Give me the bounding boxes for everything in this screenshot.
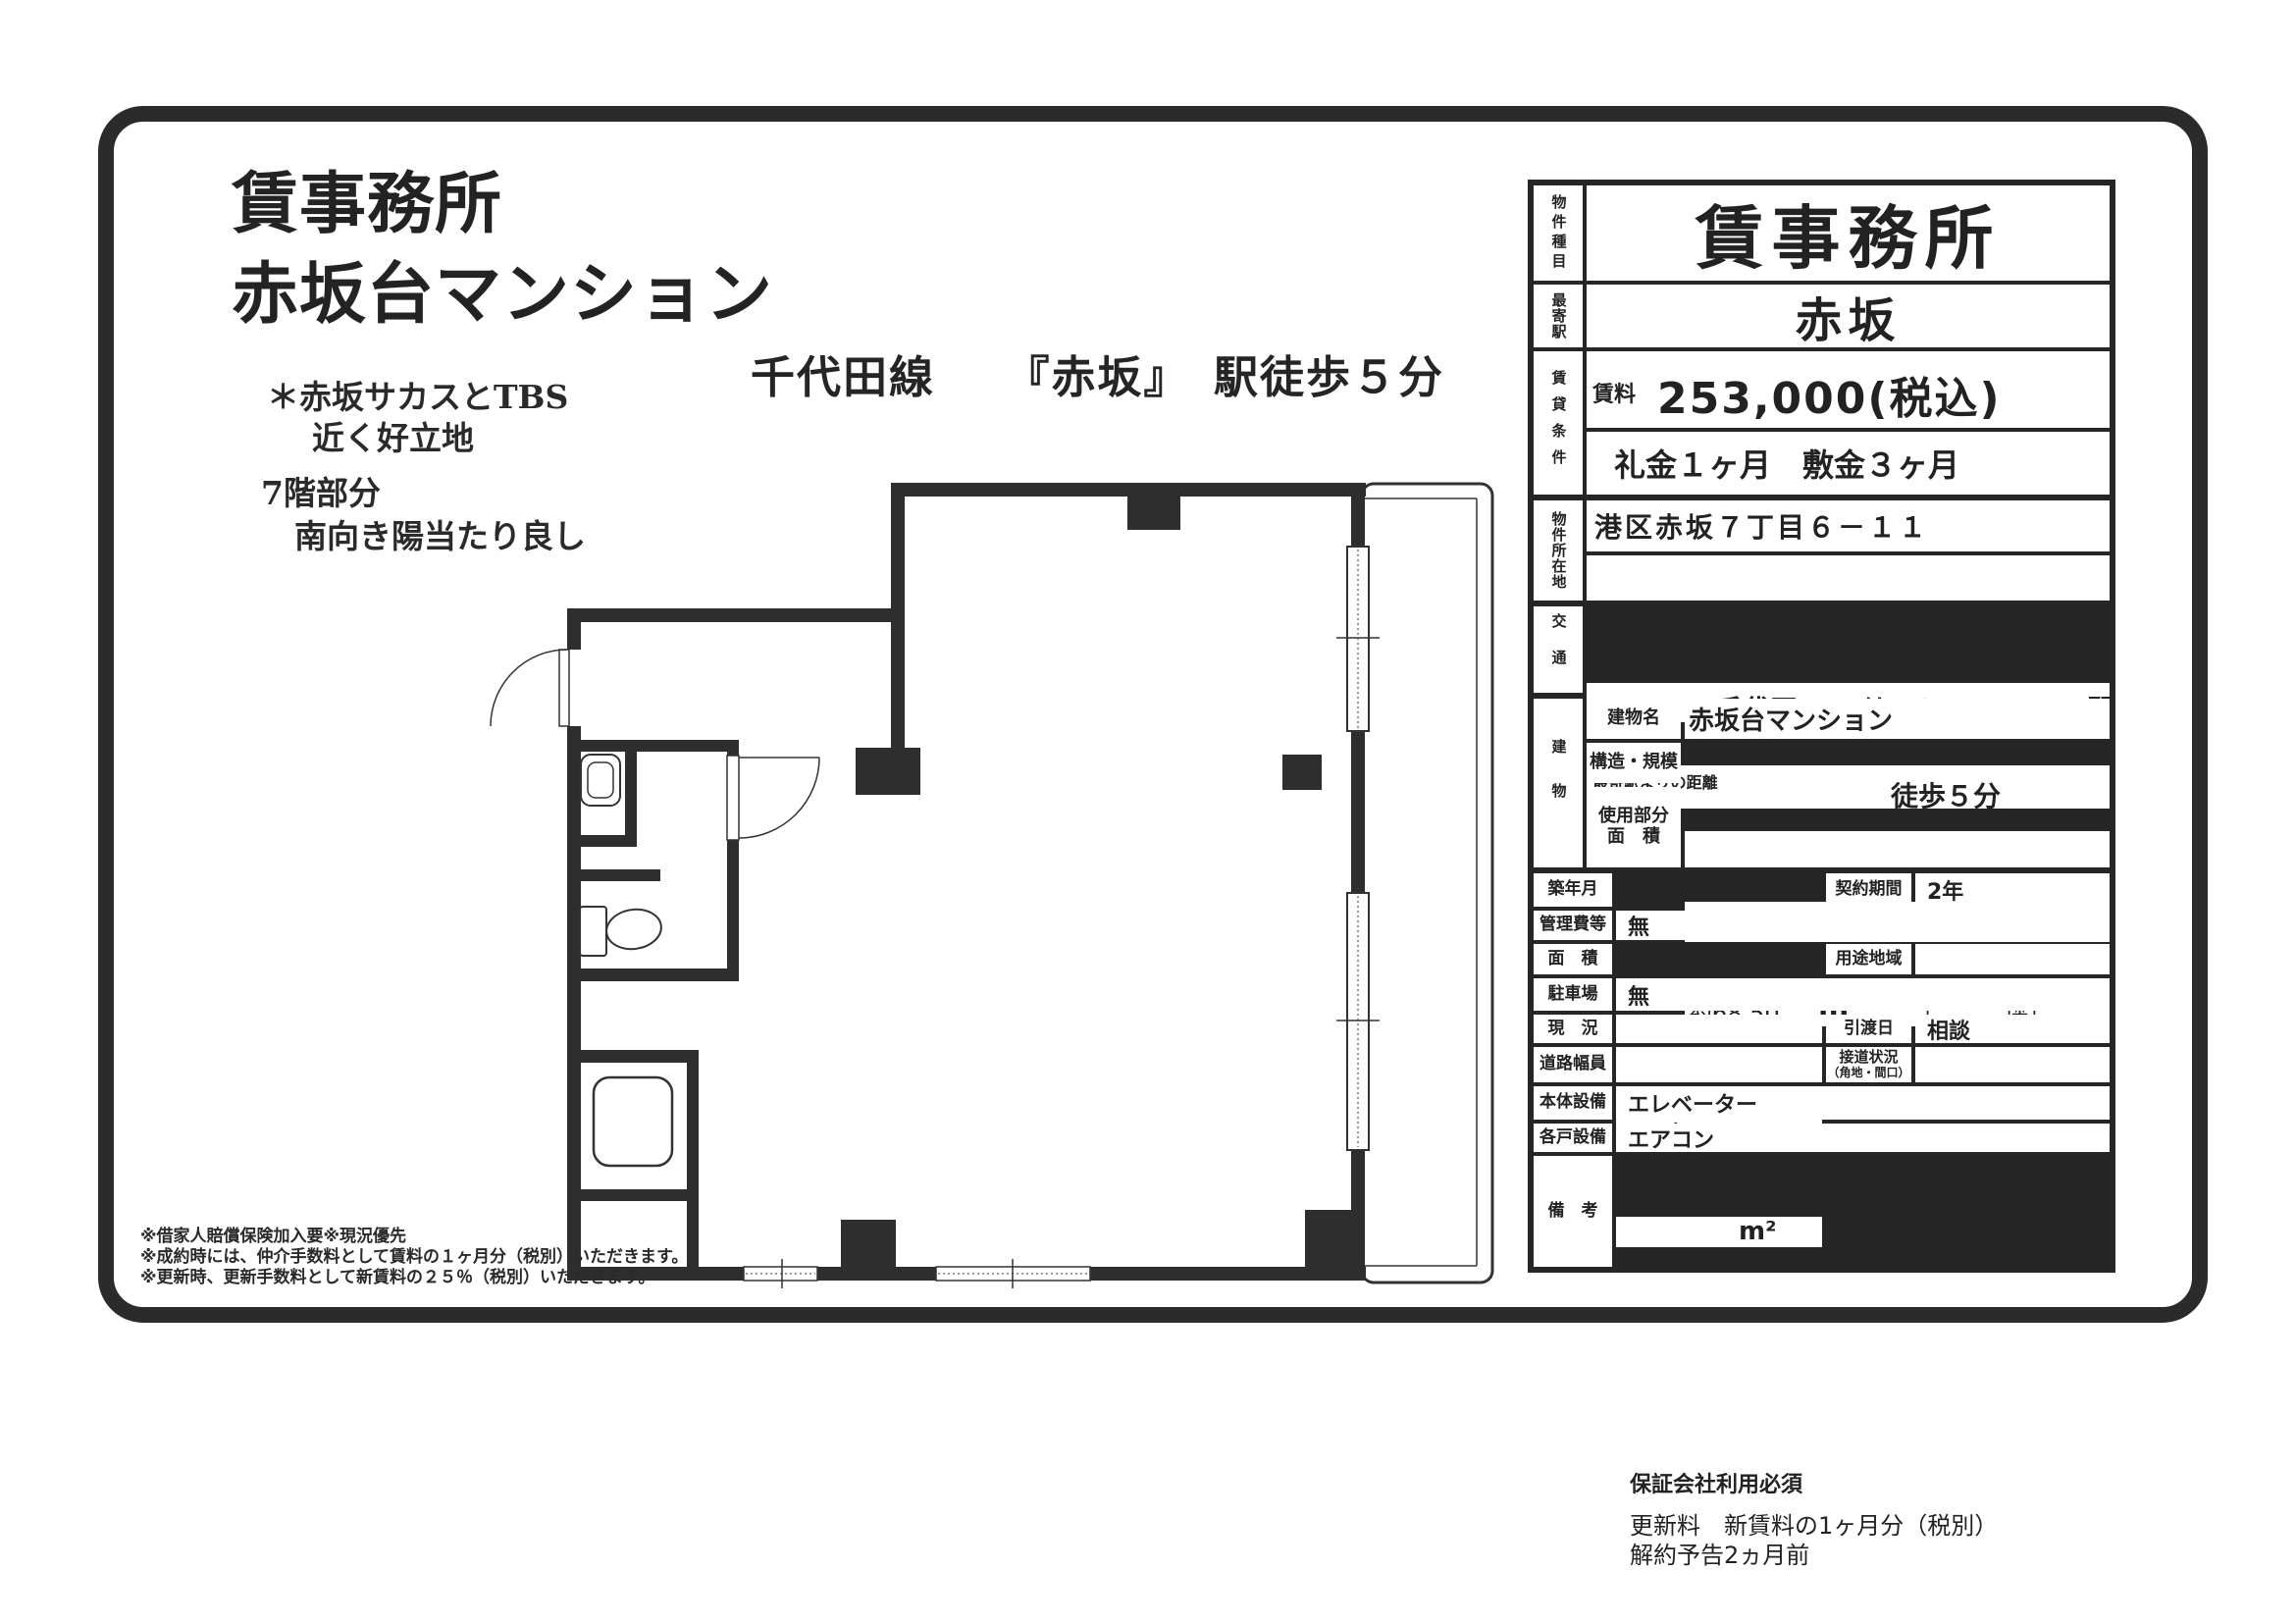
rent-label: 賃料	[1592, 377, 1636, 408]
property-type-value: 賃事務所	[1587, 185, 2110, 281]
washroom-door-swing-icon	[727, 756, 819, 840]
wall	[567, 483, 1366, 1281]
unit-equip-value: エアコン	[1616, 1124, 2110, 1152]
label-building: 建物	[1534, 699, 1583, 867]
remarks-label: 備 考	[1534, 1156, 1612, 1267]
mgmt-value: 無	[1616, 911, 2110, 940]
page-title-line2: 赤坂台マンション	[232, 239, 773, 337]
zoning-value	[1915, 944, 2110, 974]
pillar-block	[856, 748, 920, 795]
zoning-label: 用途地域	[1826, 944, 1911, 974]
pillar-block	[1305, 1210, 1364, 1267]
road-value	[1616, 1047, 1822, 1082]
sink-icon	[581, 755, 620, 806]
balcony-outline	[1362, 484, 1492, 1283]
road-label: 道路幅員	[1534, 1047, 1612, 1082]
contract-label: 契約期間	[1826, 873, 1911, 907]
key-money-value: 礼金１ヶ月 敷金３ヶ月	[1587, 441, 1959, 486]
parking-value: 無	[1616, 978, 2110, 1011]
area2-unit: m²	[1739, 1217, 1776, 1246]
remarks-line1: 保証会社利用必須	[1630, 1467, 1802, 1498]
building-name-value: 赤坂台マンション	[1685, 701, 1893, 737]
label-access: 交通	[1534, 606, 1583, 693]
building-name-label: 建物名	[1587, 699, 1681, 739]
rent-value: 253,000(税込)	[1657, 363, 2002, 426]
bldg-equip-value: エレベーター	[1616, 1086, 2110, 1120]
nearest-station-value: 赤坂	[1587, 285, 2110, 347]
note-sakas-line1: ＊赤坂サカスとTBS	[267, 371, 568, 418]
spec-table: 物件種目 最寄駅 賃貸条件 物件所在地 交通 建物 賃事務所 赤坂 賃料 253…	[1528, 180, 2115, 1273]
disclaimer-line: ※更新時、更新手数料として新賃料の２５％（税別）いただきます。	[140, 1263, 654, 1287]
area-label: 使用部分面 積	[1587, 787, 1681, 867]
note-sakas-line2: 近く好立地	[312, 412, 474, 459]
location-value: 港区赤坂７丁目６－１１	[1587, 506, 1929, 546]
pillar-block	[841, 1220, 896, 1267]
floor-plan	[471, 432, 1521, 1295]
listing-sheet: 賃事務所 赤坂台マンション ＊赤坂サカスとTBS 近く好立地 7階部分 南向き陽…	[0, 0, 2296, 1623]
mgmt-label: 管理費等	[1534, 911, 1612, 940]
toilet-icon	[580, 906, 664, 956]
note-floor-line1: 7階部分	[261, 467, 381, 514]
road-contact-label: 接道状況 （角地・間口）	[1826, 1047, 1911, 1082]
unit-equip-label: 各戸設備	[1534, 1124, 1612, 1152]
road-contact-value	[1915, 1047, 2110, 1082]
label-property-type: 物件種目	[1534, 185, 1583, 281]
structure-label: 構造・規模	[1587, 743, 1681, 783]
area2-label: 面 積	[1534, 944, 1612, 974]
bldg-equip-label: 本体設備	[1534, 1086, 1612, 1120]
status-value	[1616, 1015, 1822, 1043]
built-label: 築年月	[1534, 873, 1612, 907]
label-nearest-station: 最寄駅	[1534, 285, 1583, 347]
status-label: 現 況	[1534, 1015, 1612, 1043]
handover-label: 引渡日	[1826, 1015, 1911, 1043]
handover-value: 相談	[1915, 1015, 2110, 1043]
contract-value: 2年	[1915, 873, 2110, 907]
station-heading: 千代田線 『赤坂』 駅徒歩５分	[751, 341, 1444, 405]
distance-value: 徒歩５分	[1891, 775, 2001, 809]
page-title-line1: 賃事務所	[232, 149, 502, 246]
pillar-block	[1127, 497, 1180, 530]
remarks-line3: 解約予告2ヵ月前	[1630, 1536, 1809, 1570]
label-terms: 賃貸条件	[1534, 351, 1583, 495]
pillar-block	[1282, 755, 1322, 790]
entry-door-swing-icon	[491, 650, 569, 726]
parking-label: 駐車場	[1534, 978, 1612, 1011]
location-empty-row	[1587, 555, 2110, 601]
label-location: 物件所在地	[1534, 500, 1583, 601]
area-empty-row	[1685, 831, 2110, 867]
bathtub-icon	[594, 1077, 672, 1166]
